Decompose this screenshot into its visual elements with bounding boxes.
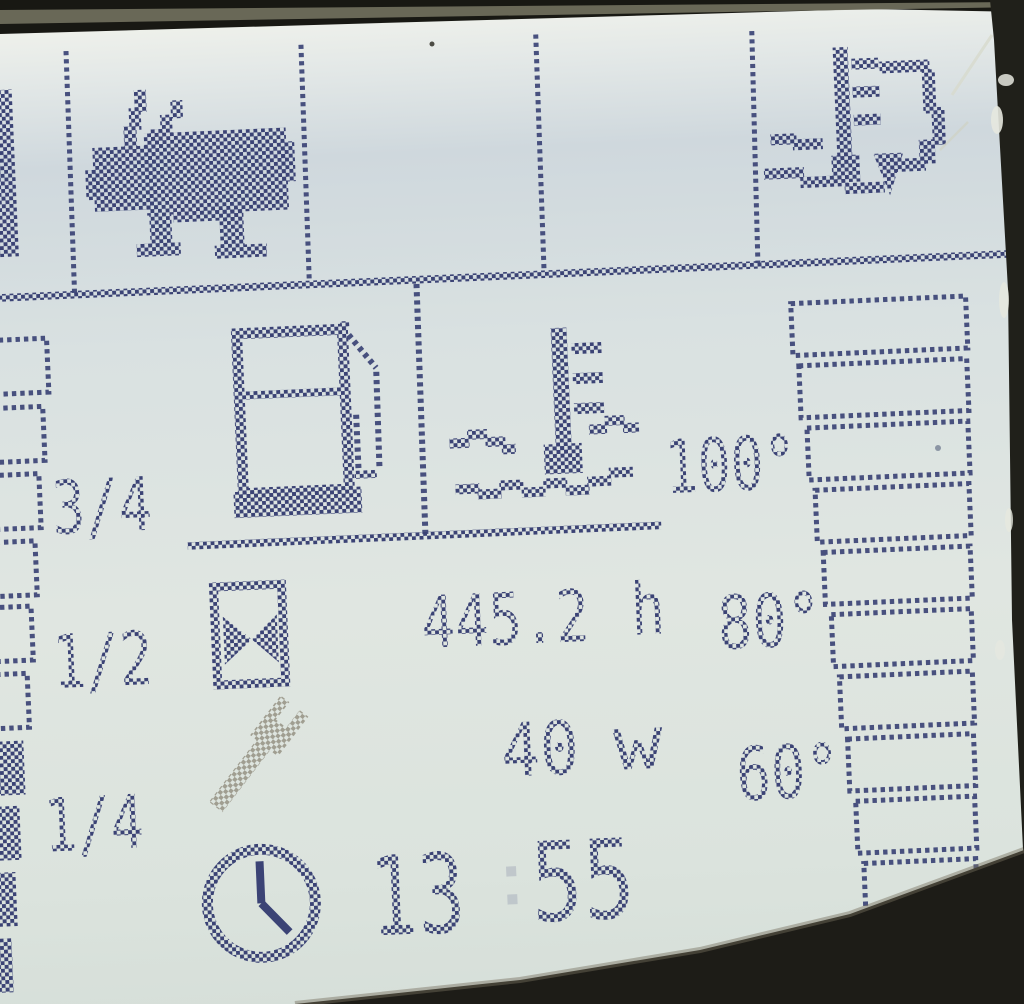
fuel-segment-filled [0,872,18,931]
engine-hours-value: 445.2 [419,574,591,665]
lcd-dashboard-photo: 3/4 1/2 1/4 [0,0,1024,1004]
fuel-segment-filled [0,806,22,865]
fuel-segment-filled [0,938,14,997]
temp-label-100: 100° [663,420,799,512]
service-unit: w [611,700,665,788]
fuel-segment-filled [0,741,26,800]
clock-hour: 13 [366,829,467,961]
temp-label-80: 80° [716,577,824,667]
fuel-label-quarter: 1/4 [42,779,146,869]
clock-minute: 55 [528,815,637,947]
fuel-label-half: 1/2 [51,616,155,706]
lcd-panel: 3/4 1/2 1/4 [0,0,1024,1004]
service-value: 40 [499,705,581,794]
engine-hours-unit: h [629,566,667,651]
fuel-label-three-quarter: 3/4 [50,462,154,552]
temp-label-60: 60° [734,728,842,818]
